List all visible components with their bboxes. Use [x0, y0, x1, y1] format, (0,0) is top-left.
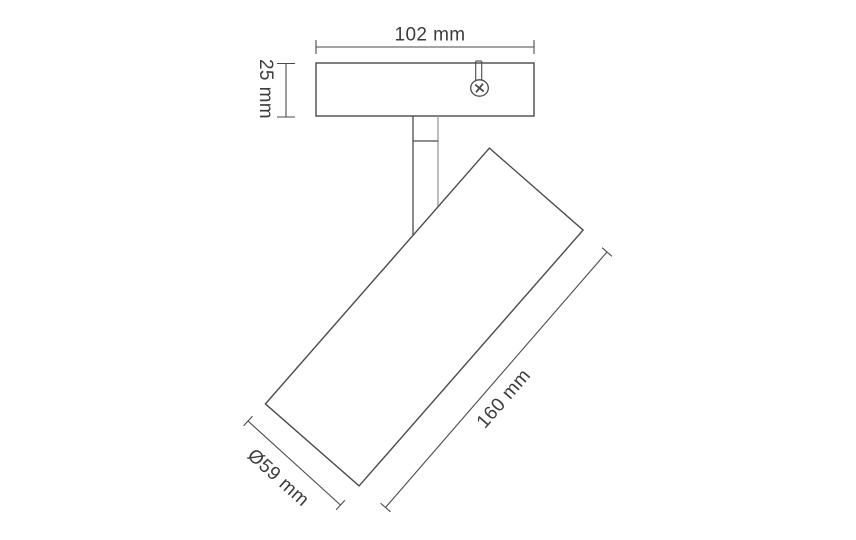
label-body-diameter: Ø59 mm — [243, 445, 313, 511]
label-plate-width: 102 mm — [394, 25, 465, 46]
dimension-plate-height — [277, 64, 295, 118]
dim-tick-body-length-top — [602, 248, 612, 257]
label-body-length: 160 mm — [473, 365, 535, 432]
spotlight-body — [265, 148, 583, 486]
mounting-plate-outline — [316, 63, 534, 116]
mounting-plate — [316, 63, 534, 116]
technical-drawing-page: 102 mm 25 mm 160 mm Ø59 mm — [0, 0, 856, 540]
spotlight-technical-drawing: 102 mm 25 mm 160 mm Ø59 mm — [0, 0, 856, 540]
dim-tick-body-length-bottom — [381, 503, 391, 512]
label-plate-height: 25 mm — [255, 59, 276, 119]
spotlight-body-outline — [265, 148, 583, 486]
